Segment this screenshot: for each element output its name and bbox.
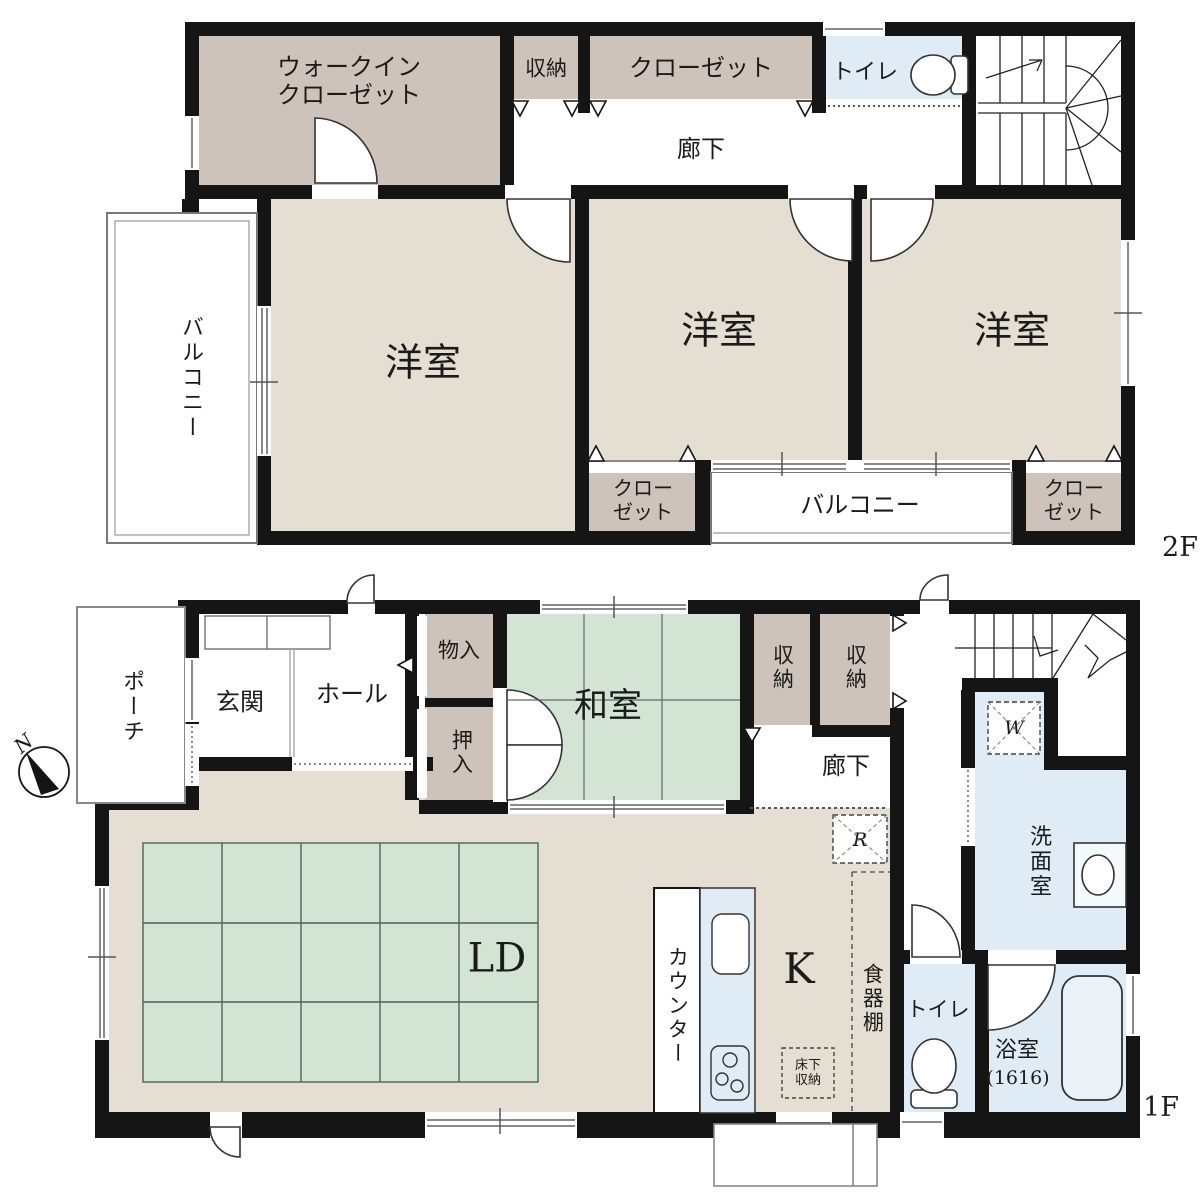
label-2f-balcony-bottom: バルコニー (800, 491, 920, 519)
wall (890, 950, 1140, 964)
wall (95, 1112, 1140, 1138)
label-compass-n: N (10, 729, 39, 758)
label-1f-storage-a: 収納 (770, 644, 795, 692)
label-washer-mark: W (1004, 717, 1024, 739)
wall (419, 800, 754, 814)
wall (185, 185, 1135, 199)
label-2f-bedroom1: 洋室 (385, 341, 461, 386)
label-1f-washitsu: 和室 (574, 686, 642, 726)
label-2f-bedroom2: 洋室 (681, 309, 757, 354)
wall (185, 600, 199, 810)
label-1f-corridor: 廊下 (822, 752, 870, 780)
room-1f-ldk-upper (199, 771, 433, 790)
label-fridge-mark: R (853, 829, 867, 851)
label-1f-counter: カウンター (665, 946, 690, 1066)
label-2f-storage: 収納 (525, 57, 567, 82)
wall (500, 99, 976, 113)
label-2f-toilet: トイレ (832, 60, 898, 86)
label-1f-cupboard: 食器棚 (860, 963, 885, 1035)
wall (975, 964, 989, 1112)
room-1f-toilet (904, 964, 975, 1112)
label-1f-bath-size: (1616) (986, 1067, 1049, 1089)
label-2f-closet-br: クローゼット (1044, 430, 1104, 572)
label-1f-storage-b: 収納 (843, 644, 868, 692)
wall (1126, 600, 1140, 1138)
wall (810, 614, 820, 725)
label-1f-porch: ポーチ (118, 670, 144, 745)
wall (848, 199, 862, 472)
label-1f-storage-small: 物入 (438, 639, 480, 664)
wall (199, 757, 292, 771)
wall (740, 600, 754, 814)
label-1f-floor: 1F (1143, 1092, 1179, 1124)
wall (754, 725, 890, 737)
wall (493, 614, 507, 690)
label-1f-ld: LD (468, 935, 527, 982)
wall (257, 199, 271, 545)
label-1f-kitchen: K (783, 944, 814, 994)
label-1f-oshiire: 押入 (449, 729, 474, 777)
stairs-1f (955, 614, 1126, 678)
label-2f-bedroom3: 洋室 (974, 309, 1050, 354)
wall (695, 460, 711, 545)
label-2f-wic: ウォークインクローゼット (277, 0, 421, 166)
wall (1121, 22, 1135, 545)
label-1f-underfloor: 床下収納 (795, 1027, 821, 1119)
stairs-2f (978, 36, 1121, 185)
label-2f-closet-bl: クローゼット (613, 430, 673, 572)
wall (182, 199, 196, 232)
wall (425, 698, 493, 707)
floor-plan-canvas: ウォークインクローゼット 収納 クローゼット トイレ 廊下 バルコニー 洋室 洋… (0, 0, 1200, 1200)
label-2f-corridor: 廊下 (677, 135, 725, 163)
label-1f-hall: ホール (316, 680, 388, 708)
label-1f-toilet: トイレ (907, 998, 970, 1023)
wall (1012, 460, 1026, 545)
label-2f-floor: 2F (1162, 532, 1198, 564)
label-1f-bath: 浴室 (995, 1038, 1039, 1064)
wall (95, 790, 109, 1138)
wall (405, 600, 419, 800)
label-1f-washroom: 洗面室 (1025, 825, 1051, 900)
label-1f-entrance: 玄関 (216, 688, 264, 716)
label-2f-closet: クローゼット (629, 54, 773, 82)
label-2f-balcony-left: バルコニー (177, 316, 203, 441)
wall (961, 690, 975, 964)
wall (1044, 756, 1140, 770)
wall (95, 796, 199, 810)
wall (890, 600, 904, 1112)
wall (178, 600, 1140, 614)
wall (575, 199, 589, 545)
